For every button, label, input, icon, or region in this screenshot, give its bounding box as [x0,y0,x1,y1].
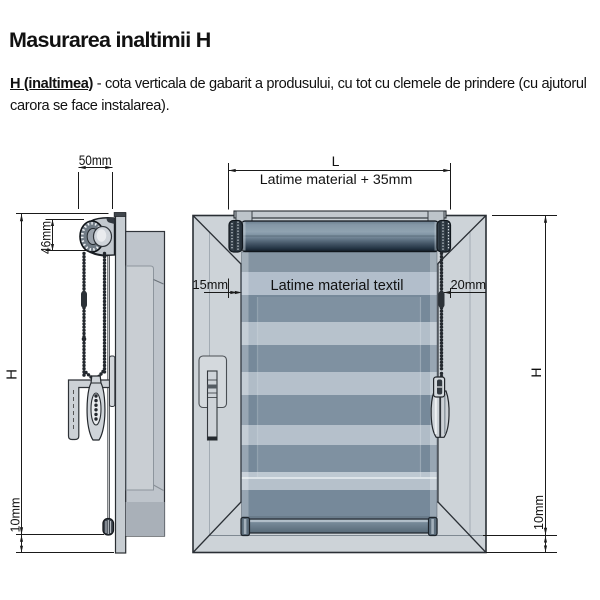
svg-text:L: L [332,153,340,169]
svg-text:H: H [4,369,21,380]
svg-text:50mm: 50mm [79,152,112,168]
svg-text:H: H [528,367,544,377]
svg-text:15mm: 15mm [193,277,229,292]
svg-text:46mm: 46mm [38,221,54,254]
svg-text:Latime material + 35mm: Latime material + 35mm [260,172,413,188]
svg-text:20mm: 20mm [451,277,487,292]
svg-text:Latime material textil: Latime material textil [271,278,404,294]
svg-text:10mm: 10mm [531,495,546,530]
svg-text:10mm: 10mm [8,498,23,533]
